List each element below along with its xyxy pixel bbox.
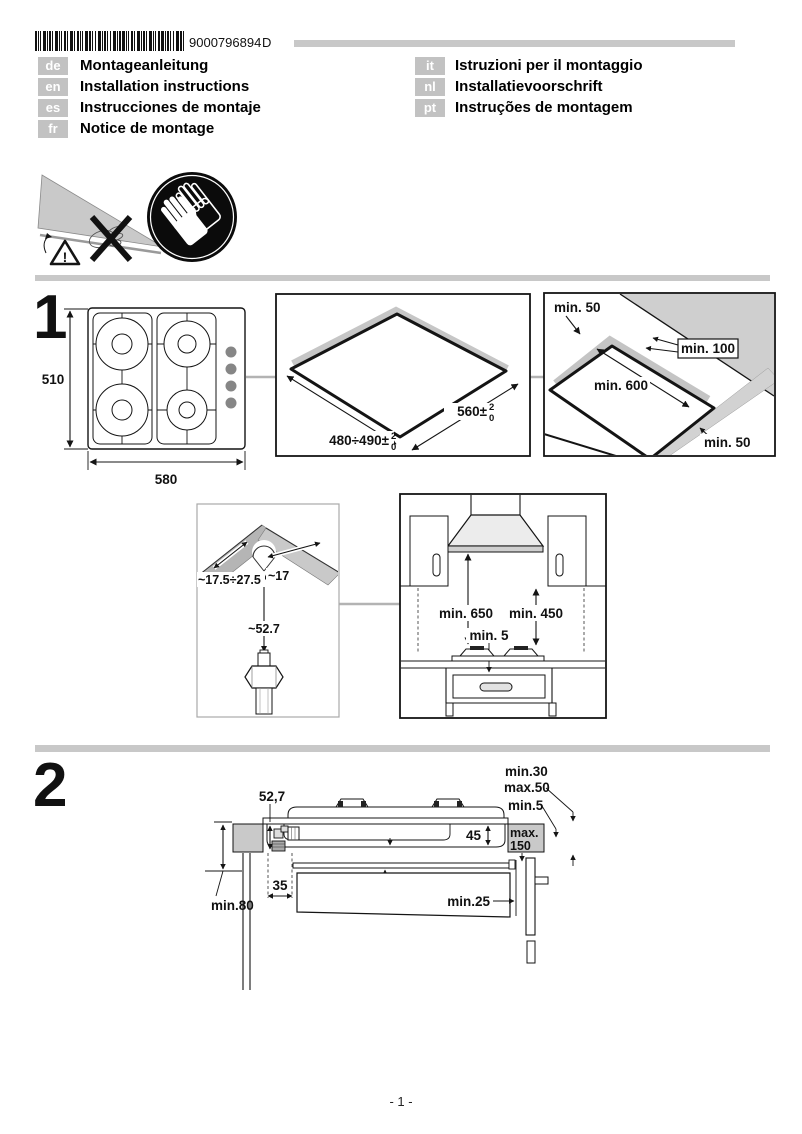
cutout-width-tol-sub: 0 [489,413,494,424]
hob-width-label: 580 [155,472,178,487]
do-not-lift-warning-icon: ! [38,175,163,265]
exclamation-mark: ! [63,249,68,265]
barcode-number: 9000796894 [189,35,261,50]
corner-radius-label: ~17.5÷27.5 [198,573,261,587]
lang-title-it: Istruzioni per il montaggio [455,57,643,75]
lang-title-fr: Notice de montage [80,120,214,138]
connection-distance-label: ~52.7 [248,622,280,636]
lang-badge-de: de [38,57,68,75]
revision-code: D [262,35,271,50]
section-divider-2 [35,745,770,752]
lang-badge-fr: fr [38,120,68,138]
rear-gap-label: min.25 [447,894,490,909]
worktop-thickness-max-label: max.50 [504,780,550,795]
body-depth-label: 45 [466,828,482,843]
hood-clearance-diagram: min. 650 min. 450 min. 5 [400,494,606,718]
clearance-rear-label: min. 50 [554,300,601,315]
cutout-width-label: 560± [457,404,488,419]
shelf-depth-label-1: max. [510,826,539,840]
barcode [35,31,187,52]
cutout-depth-label: 480÷490± [329,433,389,448]
clearance-side-label: min. 50 [704,435,751,450]
hood-clearance-label: min. 650 [439,606,493,621]
clearance-diagram: min. 50 min. 100 min. 600 min. 50 [544,293,779,461]
lang-badge-it: it [415,57,445,75]
worktop-thickness-min-label: min.30 [505,764,548,779]
header-rule [294,40,735,47]
clearance-wall-label: min. 100 [681,341,735,356]
worktop-cutout-diagram: 480÷490± 2 0 560± 2 0 [276,294,530,456]
installation-cross-section: max. 150 52,7 min.30 max.50 min.5 [205,764,573,990]
step-number-2: 2 [33,755,67,820]
section1-diagrams: 1 [0,285,802,740]
lang-badge-es: es [38,99,68,117]
pipe-clearance-label: min.80 [211,898,254,913]
corner-detail-diagram: ~17.5÷27.5 ~17 ~52.7 [197,504,340,717]
clearance-front-label: min. 600 [594,378,648,393]
rear-wall-panel [526,858,548,963]
section2-diagram: 2 max. 150 [0,755,802,1000]
step-number-1: 1 [33,285,67,352]
lang-badge-nl: nl [415,78,445,96]
page-number: - 1 - [0,1094,802,1109]
section-divider [35,275,770,281]
intermediate-shelf [293,863,509,868]
wall-cabinet-left [410,516,448,586]
side-gap-label: min.5 [508,798,544,813]
wall-cabinet-right [548,516,586,586]
cutout-depth-tol-sub: 0 [391,442,396,453]
hob-plate [263,818,508,824]
wear-gloves-icon [147,172,237,262]
cutout-depth-tol-sup: 2 [391,431,396,442]
document-page: 9000796894 D de Montageanleitung en Inst… [0,0,802,1134]
lang-title-es: Instrucciones de montaje [80,99,261,117]
lang-title-de: Montageanleitung [80,57,208,75]
worktop-section-left [233,824,263,852]
shelf-depth-label-2: 150 [510,839,531,853]
lang-title-nl: Installatievoorschrift [455,78,603,96]
lang-badge-pt: pt [415,99,445,117]
hob-depth-label: 510 [42,372,65,387]
corner-edge-label: ~17 [268,569,289,583]
warning-pictograms: ! [30,165,250,275]
lang-badge-en: en [38,78,68,96]
connection-height-label: 52,7 [259,789,285,804]
cabinet-clearance-label: min. 450 [509,606,563,621]
gap-below-label: min. 5 [469,628,509,643]
lang-title-pt: Instruções de montagem [455,99,633,117]
lang-title-en: Installation instructions [80,78,249,96]
gas-pipe [243,853,250,990]
cutout-width-tol-sup: 2 [489,402,494,413]
pipe-offset-label: 35 [272,878,288,893]
hob-top-view: 510 580 [42,308,245,487]
